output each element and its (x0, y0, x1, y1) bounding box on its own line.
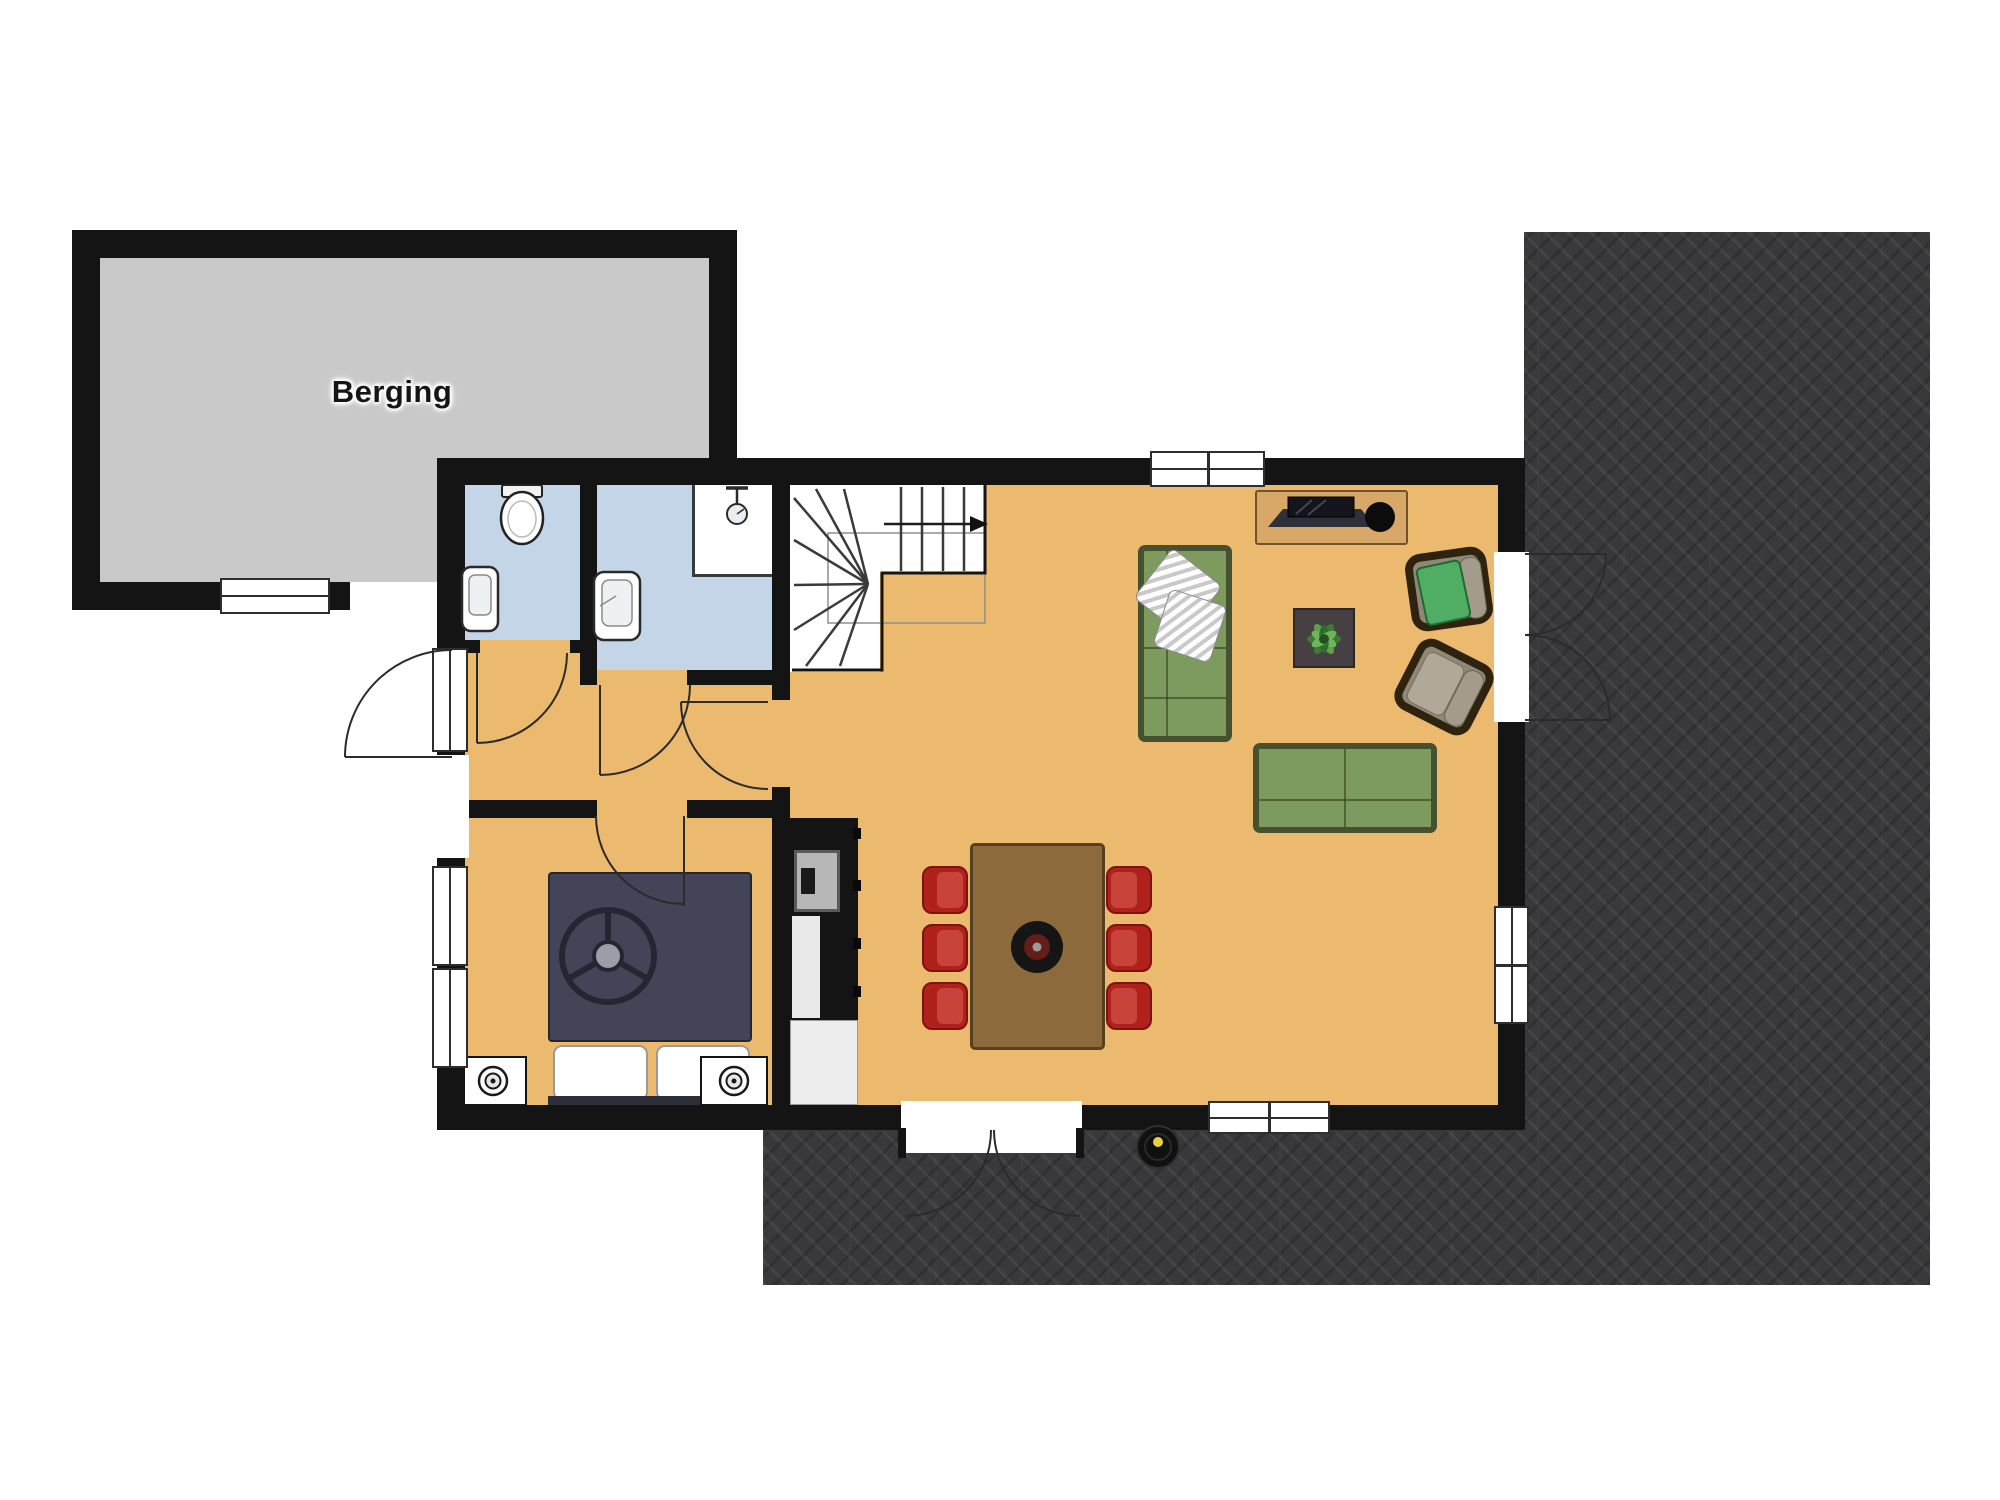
dining-chair (922, 866, 968, 914)
front-door-gap (433, 755, 469, 858)
sofa-horizontal (1253, 743, 1437, 833)
kitchen-handle-4 (853, 986, 861, 997)
floorplan-canvas: Berging (0, 0, 2000, 1500)
patio-door-gap (901, 1101, 1082, 1153)
wall-hall-living-upper (772, 485, 790, 700)
staircase-run (880, 485, 985, 573)
storage-wall-right (709, 230, 737, 485)
wall-bedroom-top-b (687, 800, 772, 818)
kitchen-counter-column (792, 916, 820, 1018)
window-hall (432, 648, 468, 752)
wall-bathroom-bottom (687, 670, 772, 685)
tv-sideboard (1255, 490, 1408, 545)
window-storage (220, 578, 330, 614)
dining-chair (922, 924, 968, 972)
dining-table (970, 843, 1105, 1050)
wall-toilet-bathroom (580, 485, 597, 685)
bed-duvet (548, 872, 752, 1042)
dining-chair (1106, 982, 1152, 1030)
plant-side-table (1293, 608, 1355, 668)
dining-chair (922, 982, 968, 1030)
storage-wall-top (72, 230, 737, 258)
kitchen-handle-2 (853, 880, 861, 891)
nightstand-right (700, 1056, 768, 1106)
window-bedroom-a (432, 866, 468, 966)
window-bedroom-b (432, 968, 468, 1068)
storage-room-floor-lower (100, 458, 437, 582)
patio-door-jamb-right (1076, 1128, 1084, 1158)
nightstand-left (459, 1056, 527, 1106)
kitchen-handle-3 (853, 938, 861, 949)
terrace-door-gap-right (1494, 552, 1529, 722)
wall-toilet-bottom-b (570, 640, 582, 653)
storage-wall-left (72, 230, 100, 610)
window-right-wall (1494, 906, 1529, 1024)
armchair-green (1403, 545, 1495, 634)
kitchen-oven-door (801, 868, 815, 894)
window-bottom-wall (1208, 1101, 1330, 1134)
staircase-area (790, 485, 880, 672)
wall-hall-living-lower (772, 787, 790, 1107)
kitchen-handle-1 (853, 828, 861, 839)
bed-pillow-left (553, 1045, 648, 1101)
kitchen-counter (790, 1020, 858, 1105)
room-label-berging: Berging (292, 374, 492, 410)
wall-bedroom-top-a (465, 800, 597, 818)
window-top-wall (1150, 451, 1265, 487)
patio-door-jamb-left (898, 1128, 906, 1158)
dining-chair (1106, 866, 1152, 914)
house-wall-top (437, 458, 1525, 485)
storage-room-floor (100, 258, 709, 458)
toilet-room-floor (465, 485, 580, 640)
dining-chair (1106, 924, 1152, 972)
shower-tray (692, 485, 772, 577)
